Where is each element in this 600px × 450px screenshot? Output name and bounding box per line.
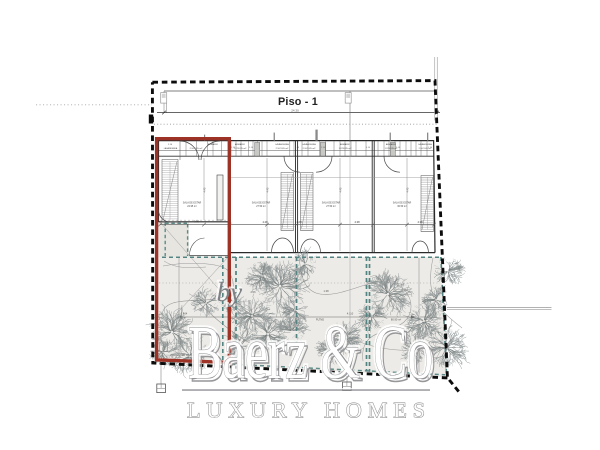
svg-text:ARMARIO: ARMARIO: [235, 143, 246, 146]
svg-text:2.10/1.65 m2: 2.10/1.65 m2: [190, 148, 204, 150]
svg-text:ARMARIO: ARMARIO: [386, 143, 397, 146]
svg-text:27.50 m²: 27.50 m²: [256, 205, 266, 208]
svg-text:4.45: 4.45: [267, 187, 270, 192]
svg-text:LAVANDERIA: LAVANDERIA: [164, 147, 178, 150]
svg-text:LAVANDERIA: LAVANDERIA: [302, 143, 316, 146]
svg-text:LAVANDERIA: LAVANDERIA: [275, 143, 289, 146]
svg-text:2.06: 2.06: [250, 290, 256, 294]
svg-text:2.08: 2.08: [296, 220, 302, 224]
svg-text:Piso - 1: Piso - 1: [278, 96, 318, 108]
svg-text:24.30: 24.30: [291, 109, 299, 113]
svg-text:4.45: 4.45: [204, 187, 207, 192]
svg-text:27.50 m²: 27.50 m²: [326, 205, 336, 208]
svg-text:4.38: 4.38: [354, 220, 360, 224]
svg-text:4.28: 4.28: [262, 220, 268, 224]
svg-text:ARMARIO: ARMARIO: [340, 143, 351, 146]
svg-text:4.45: 4.45: [407, 187, 410, 192]
svg-text:1.97/0.95 m2: 1.97/0.95 m2: [234, 148, 248, 150]
svg-text:LAVANDERIA: LAVANDERIA: [418, 143, 432, 146]
svg-text:3.00: 3.00: [194, 220, 200, 224]
svg-text:by: by: [217, 277, 243, 307]
svg-text:1.38: 1.38: [323, 289, 329, 293]
svg-text:30.50 m²: 30.50 m²: [397, 205, 407, 208]
svg-text:4.38: 4.38: [417, 220, 423, 224]
svg-text:4.45: 4.45: [340, 187, 343, 192]
svg-text:2.10/1.65 m2: 2.10/1.65 m2: [303, 148, 317, 150]
svg-text:2.10/1.65 m2: 2.10/1.65 m2: [276, 148, 290, 150]
svg-text:ARMARIO: ARMARIO: [208, 143, 219, 146]
svg-text:22.95 m²: 22.95 m²: [187, 205, 197, 208]
svg-text:Baerz & Co: Baerz & Co: [188, 311, 433, 395]
